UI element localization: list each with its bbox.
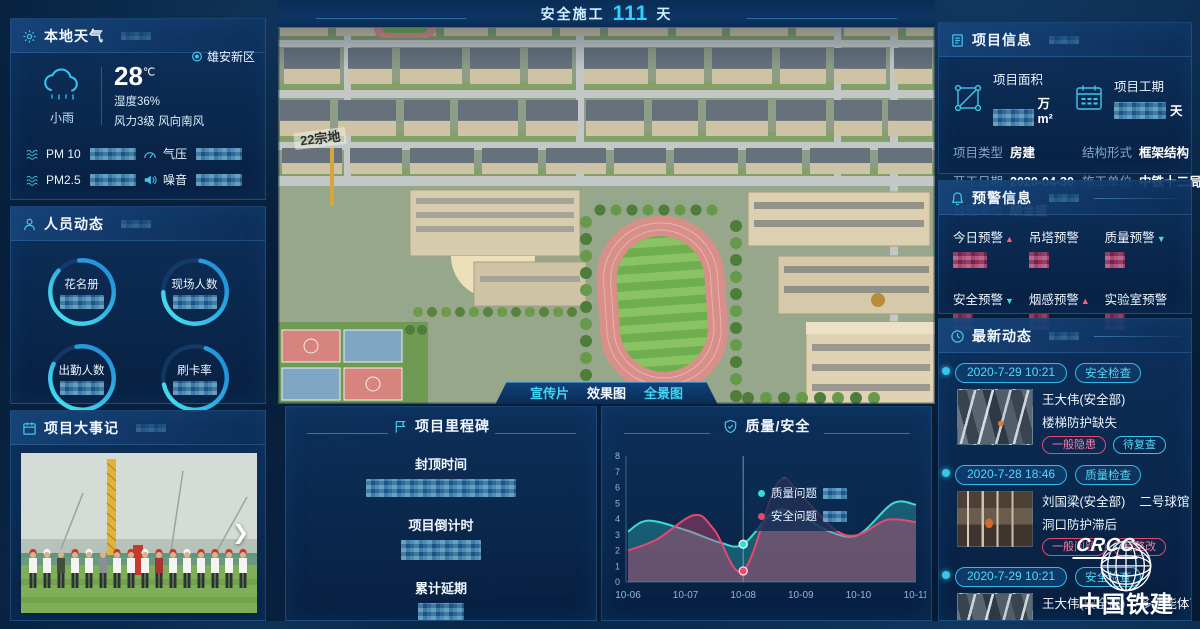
redacted-value — [401, 540, 481, 560]
trend-down-icon: ▼ — [1157, 234, 1166, 244]
personnel-ring: 现场人数 — [158, 255, 232, 329]
milestone-item: 封顶时间 — [366, 454, 516, 502]
ring-content: 花名册 — [45, 255, 119, 329]
update-entry[interactable]: 2020-7-29 10:21安全检查王大伟(安全部)楼梯防护缺失一般隐患待复查 — [955, 363, 1185, 454]
noise-icon — [142, 172, 158, 188]
svg-text:10-09: 10-09 — [788, 590, 814, 601]
temperature-unit: ℃ — [143, 66, 155, 78]
milestone-label: 累计延期 — [415, 578, 467, 597]
calendar-icon — [1072, 81, 1106, 115]
svg-text:10-07: 10-07 — [673, 590, 699, 601]
redacted-value — [173, 381, 217, 395]
project-duration-unit: 天 — [1170, 100, 1183, 119]
series-name: 质量问题 — [771, 485, 817, 501]
update-photo — [957, 593, 1033, 621]
milestone-item: 项目倒计时 — [401, 515, 481, 565]
update-type-badge: 质量检查 — [1075, 465, 1141, 485]
alert-label: 今日预警▲ — [953, 227, 1023, 246]
personnel-panel-title: 人员动态 — [44, 214, 104, 234]
svg-text:10-11: 10-11 — [904, 590, 926, 601]
chevron-right-icon[interactable]: ❯ — [232, 523, 249, 543]
svg-text:10-06: 10-06 — [615, 590, 641, 601]
trend-up-icon: ▲ — [1005, 234, 1014, 244]
weather-metric-label: PM2.5 — [46, 173, 81, 187]
location-name: 雄安新区 — [207, 48, 255, 65]
svg-text:8: 8 — [615, 451, 620, 461]
crcc-abbreviation: CRCC — [1072, 535, 1140, 559]
personnel-ring: 刷卡率 — [158, 341, 232, 415]
weather-metric: PM 10 — [25, 145, 138, 162]
ring-label: 刷卡率 — [177, 362, 212, 378]
personnel-panel: 人员动态 花名册现场人数出勤人数刷卡率 — [10, 206, 266, 404]
alert-item: 今日预警▲ — [953, 227, 1023, 273]
weather-metric: 噪音 — [142, 171, 255, 188]
svg-text:7: 7 — [615, 467, 620, 477]
milestone-label: 项目倒计时 — [401, 515, 481, 534]
update-time-badge: 2020-7-29 10:21 — [955, 363, 1067, 383]
location-tag: 雄安新区 — [191, 48, 255, 65]
milestone-panel-title: 项目里程碑 — [415, 416, 490, 436]
quality-safety-panel: 质量/安全 01234567810-0610-0710-0810-0910-10… — [601, 406, 932, 621]
personnel-rings: 花名册现场人数出勤人数刷卡率 — [11, 241, 265, 415]
svg-text:6: 6 — [615, 483, 620, 493]
svg-text:5: 5 — [615, 498, 620, 508]
ring-label: 现场人数 — [172, 276, 218, 292]
trend-down-icon: ▼ — [1005, 296, 1014, 306]
alerts-panel-title: 预警信息 — [972, 188, 1032, 208]
redacted-value — [60, 381, 104, 395]
land-plot-pole — [330, 148, 334, 206]
pm25-icon — [25, 172, 41, 188]
project-duration-label: 项目工期 — [1114, 76, 1183, 95]
aerial-render-view: 22宗地 宣传片 效果图 全景图 — [278, 0, 935, 404]
redacted-value — [196, 148, 242, 160]
update-person: 王大伟(安全部) — [1042, 389, 1166, 408]
svg-text:4: 4 — [615, 514, 620, 524]
tooltip-series-row: 安全问题 — [758, 508, 847, 524]
update-issue: 洞口防护滞后 — [1042, 514, 1185, 533]
timeline-dot — [942, 469, 950, 477]
quality-panel-title: 质量/安全 — [746, 416, 811, 436]
project-area-stat: 项目面积 万m² — [951, 69, 1062, 126]
milestone-item: 累计延期 — [415, 578, 467, 625]
alert-label: 实验室预警 — [1105, 289, 1185, 308]
header-line — [1094, 336, 1181, 337]
weather-metrics: PM 10气压PM2.5噪音 — [11, 135, 265, 188]
ring-label: 花名册 — [64, 276, 99, 292]
location-pin-icon — [191, 51, 203, 63]
weather-panel: 本地天气 雄安新区 小雨 28℃ 湿度36% 风力3级 风向南风 PM 10气压… — [10, 18, 266, 200]
header-deco — [121, 220, 151, 228]
ring-content: 现场人数 — [158, 255, 232, 329]
quality-safety-chart: 01234567810-0610-0710-0810-0910-1010-11 … — [602, 444, 931, 629]
alert-label: 吊塔预警 — [1029, 227, 1099, 246]
flag-icon — [392, 418, 408, 434]
scene-button-promo[interactable]: 宣传片 — [530, 387, 569, 400]
series-dot — [758, 513, 765, 520]
update-type-badge: 安全检查 — [1075, 363, 1141, 383]
redacted-value — [60, 295, 104, 309]
project-info-panel: 项目信息 项目面积 万m² 项目工期 — [938, 22, 1192, 174]
redacted-value — [993, 109, 1034, 126]
safety-days-banner: 安全施工 111 天 — [278, 0, 935, 28]
alert-label: 烟感预警▲ — [1029, 289, 1099, 308]
ring-label: 出勤人数 — [59, 362, 105, 378]
svg-text:10-10: 10-10 — [846, 590, 872, 601]
scene-view-switcher: 宣传片 效果图 全景图 — [496, 382, 718, 404]
redacted-value — [173, 295, 217, 309]
document-icon — [949, 32, 965, 48]
redacted-value — [418, 603, 464, 620]
event-photo: ❯ — [21, 453, 257, 613]
update-tag: 一般隐患 — [1042, 436, 1106, 454]
humidity-text: 湿度36% — [114, 93, 204, 109]
ring-content: 刷卡率 — [158, 341, 232, 415]
update-time-badge: 2020-7-28 18:46 — [955, 465, 1067, 485]
redacted-value — [366, 479, 516, 497]
crcc-logo: CRCC 中国铁建 — [1060, 533, 1192, 619]
project-area-unit: 万m² — [1038, 93, 1062, 126]
milestone-panel: 项目里程碑 封顶时间项目倒计时累计延期 — [285, 406, 597, 621]
svg-text:2: 2 — [615, 546, 620, 556]
svg-text:0: 0 — [615, 577, 620, 587]
timeline-dot — [942, 571, 950, 579]
project-field: 结构形式框架结构 — [1082, 142, 1200, 161]
field-value: 房建 — [1010, 142, 1035, 161]
updates-panel-title: 最新动态 — [972, 326, 1032, 346]
divider — [101, 67, 102, 125]
header-deco — [121, 32, 151, 40]
timeline-dot — [942, 367, 950, 375]
field-value: 框架结构 — [1139, 142, 1189, 161]
svg-text:1: 1 — [615, 561, 620, 571]
ring-content: 出勤人数 — [45, 341, 119, 415]
update-issue: 楼梯防护缺失 — [1042, 412, 1166, 431]
project-panel-title: 项目信息 — [972, 30, 1032, 50]
bell-icon — [949, 190, 965, 206]
alert-item: 质量预警▼ — [1105, 227, 1185, 273]
alert-item: 吊塔预警 — [1029, 227, 1099, 273]
project-field: 项目类型房建 — [953, 142, 1078, 161]
update-person: 刘国梁(安全部)二号球馆 — [1042, 491, 1185, 510]
weather-panel-title: 本地天气 — [44, 26, 104, 46]
redacted-value — [1114, 102, 1166, 119]
wind-text: 风力3级 风向南风 — [114, 113, 204, 129]
clock-icon — [949, 328, 965, 344]
header-deco — [1049, 332, 1079, 340]
alerts-panel: 预警信息 今日预警▲吊塔预警质量预警▼安全预警▼烟感预警▲实验室预警 — [938, 180, 1192, 314]
redacted-value — [196, 174, 242, 186]
field-label: 项目类型 — [953, 142, 1003, 161]
update-photo — [957, 389, 1033, 445]
update-tag: 待复查 — [1113, 436, 1166, 454]
header-deco — [1049, 36, 1079, 44]
field-label: 结构形式 — [1082, 142, 1132, 161]
redacted-value — [823, 488, 847, 499]
gear-icon — [21, 28, 37, 44]
shield-check-icon — [723, 418, 739, 434]
temperature-value: 28 — [114, 61, 143, 91]
header-line — [1094, 198, 1181, 199]
trend-up-icon: ▲ — [1081, 296, 1090, 306]
alerts-grid: 今日预警▲吊塔预警质量预警▼安全预警▼烟感预警▲实验室预警 — [939, 215, 1191, 335]
svg-text:10-08: 10-08 — [730, 590, 756, 601]
crcc-name: 中国铁建 — [1060, 585, 1192, 619]
redacted-value — [823, 511, 847, 522]
scene-button-panorama[interactable]: 全景图 — [644, 387, 683, 400]
tooltip-series-row: 质量问题 — [758, 485, 847, 501]
chart-canvas: 01234567810-0610-0710-0810-0910-1010-11 — [602, 444, 926, 624]
update-photo — [957, 491, 1033, 547]
update-place: 二号球馆 — [1139, 495, 1189, 509]
milestone-items: 封顶时间项目倒计时累计延期 — [286, 442, 596, 625]
weather-metric-label: 气压 — [163, 145, 187, 162]
alert-label: 安全预警▼ — [953, 289, 1023, 308]
events-panel: 项目大事记 ❯ — [10, 410, 266, 621]
calendar-icon — [21, 420, 37, 436]
area-icon — [951, 81, 985, 115]
events-panel-title: 项目大事记 — [44, 418, 119, 438]
banner-days-count: 111 — [613, 3, 649, 24]
svg-text:3: 3 — [615, 530, 620, 540]
weather-metric-label: 噪音 — [163, 171, 187, 188]
banner-suffix: 天 — [656, 4, 672, 24]
pm10-icon — [25, 146, 41, 162]
update-time-badge: 2020-7-29 10:21 — [955, 567, 1067, 587]
person-icon — [21, 216, 37, 232]
pressure-icon — [142, 146, 158, 162]
weather-condition: 小雨 — [25, 109, 99, 126]
header-deco — [1049, 194, 1079, 202]
scene-button-render[interactable]: 效果图 — [587, 387, 626, 400]
redacted-value — [90, 148, 136, 160]
rain-cloud-icon — [39, 89, 85, 106]
project-area-label: 项目面积 — [993, 69, 1062, 88]
chart-tooltip: 质量问题安全问题 — [748, 478, 857, 531]
weather-metric: PM2.5 — [25, 171, 138, 188]
redacted-value — [90, 174, 136, 186]
series-dot — [758, 490, 765, 497]
alert-label: 质量预警▼ — [1105, 227, 1185, 246]
banner-prefix: 安全施工 — [541, 4, 605, 24]
weather-current: 小雨 28℃ 湿度36% 风力3级 风向南风 — [11, 53, 265, 135]
redacted-alert-count — [1029, 252, 1049, 268]
redacted-alert-count — [1105, 252, 1125, 268]
personnel-ring: 出勤人数 — [45, 341, 119, 415]
weather-metric-label: PM 10 — [46, 147, 81, 161]
header-deco — [136, 424, 166, 432]
group-photo-graphic — [21, 453, 257, 613]
project-duration-stat: 项目工期 天 — [1072, 69, 1183, 126]
series-name: 安全问题 — [771, 508, 817, 524]
personnel-ring: 花名册 — [45, 255, 119, 329]
weather-metric: 气压 — [142, 145, 255, 162]
redacted-alert-count — [953, 252, 987, 268]
milestone-label: 封顶时间 — [366, 454, 516, 473]
aerial-render-graphic — [278, 0, 935, 404]
